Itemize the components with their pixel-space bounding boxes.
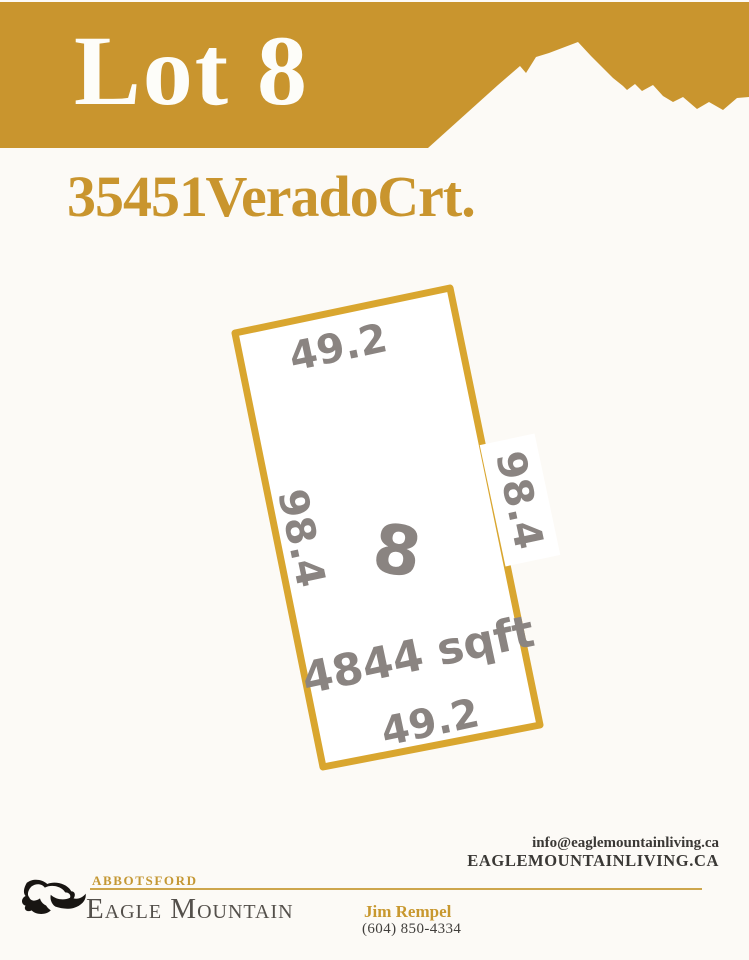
contact-block: info@eaglemountainliving.ca EAGLEMOUNTAI… <box>467 835 719 870</box>
contact-website: EAGLEMOUNTAINLIVING.CA <box>467 852 719 870</box>
agent-phone: (604) 850-4334 <box>362 921 461 938</box>
contact-email: info@eaglemountainliving.ca <box>467 835 719 852</box>
agent-name: Jim Rempel <box>364 902 451 922</box>
lot-title: Lot 8 <box>74 0 309 144</box>
footer-city-label: ABBOTSFORD <box>92 873 198 889</box>
flyer-page: Lot 8 35451 Verado Crt. 49.2 98.4 98.4 8… <box>0 0 749 960</box>
street-address: 35451 Verado Crt. <box>67 168 475 226</box>
mountain-silhouette-icon <box>428 2 749 148</box>
footer-divider-line <box>90 888 702 890</box>
title-banner: Lot 8 <box>0 2 749 148</box>
lot-plan-diagram: 49.2 98.4 98.4 8 4844 sqft 49.2 <box>0 250 749 870</box>
brand-name: Eagle Mountain <box>86 894 294 926</box>
